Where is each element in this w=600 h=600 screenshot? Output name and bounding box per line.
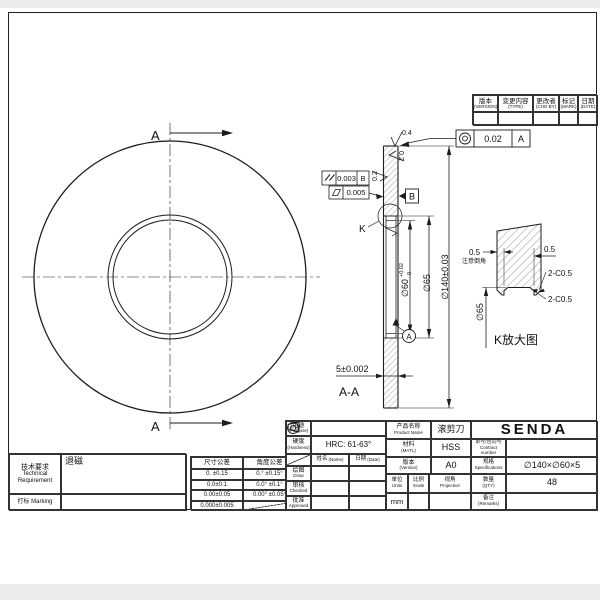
datum-a-letter: A bbox=[406, 333, 412, 342]
datum-b-flag: B bbox=[399, 189, 419, 203]
detail-body bbox=[497, 224, 541, 295]
roughness-left-value: 0.2 bbox=[372, 171, 379, 181]
detail-bore-label: ∅65 bbox=[475, 303, 485, 321]
checked-name-cell bbox=[311, 481, 349, 496]
front-view: A A bbox=[22, 123, 320, 434]
title-block-right: 产品名称 Product Name 滚剪刀 SENDA 材料 (MATL) HS… bbox=[386, 421, 598, 509]
company-name: SENDA bbox=[471, 421, 598, 439]
draw-label: 绘图 Draw bbox=[286, 466, 311, 481]
roughness-bore-icon bbox=[386, 228, 397, 236]
detail-k-letter: K bbox=[359, 224, 366, 235]
title-block-left: 用途 (Purpose) 硬度 (Hardness) HRC: 61-63° 姓… bbox=[286, 421, 386, 509]
material-label: 材料 (MATL) bbox=[386, 439, 431, 457]
revision-cell-empty bbox=[473, 112, 498, 126]
concentricity-value: 0.02 bbox=[484, 134, 502, 144]
dim-bore: ∅60 +0.02 0 bbox=[397, 221, 415, 334]
spec-value: ∅140×∅60×5 bbox=[506, 457, 598, 474]
tech-requirement-label: 技术要求 Technical Requirement bbox=[9, 454, 61, 494]
approved-label: 批准 Approved bbox=[286, 496, 311, 511]
bore-tol-upper: +0.02 bbox=[399, 263, 405, 277]
scale-value bbox=[408, 493, 429, 512]
hardness-label: 硬度 (Hardness) bbox=[286, 436, 311, 454]
detail-chamfer-1-label: 2-C0.5 bbox=[548, 269, 573, 278]
tolerance-cell: 0.00±0.05 bbox=[191, 490, 243, 501]
tolerance-cell: 0. ±0.15 bbox=[191, 469, 243, 480]
section-arrow-icon bbox=[222, 420, 233, 427]
projection-label: 视角 Projection bbox=[429, 474, 471, 493]
purpose-value bbox=[311, 421, 386, 436]
revision-header-mark: 标记 (MARK) bbox=[559, 95, 578, 112]
title-block: 用途 (Purpose) 硬度 (Hardness) HRC: 61-63° 姓… bbox=[285, 420, 597, 510]
qty-label: 数量 (QTY) bbox=[471, 474, 506, 493]
roughness-right-value: 0.2 bbox=[397, 151, 404, 161]
contract-value bbox=[506, 439, 598, 457]
projection-symbol-cell bbox=[429, 493, 471, 512]
datum-b-letter: B bbox=[409, 192, 415, 202]
section-arrow-icon bbox=[222, 130, 233, 137]
revision-table: 版本 (VERSION) 变更内容 (TYPE) 更改者 (CHG BY) 标记… bbox=[472, 94, 597, 125]
revision-header-chgby: 更改者 (CHG BY) bbox=[533, 95, 559, 112]
draw-name-cell bbox=[311, 466, 349, 481]
detail-dim-right-value: 0.5 bbox=[544, 245, 556, 254]
product-name-value: 滚剪刀 bbox=[431, 421, 471, 439]
revision-cell-empty bbox=[578, 112, 598, 126]
remarks-label: 备注 (Remarks) bbox=[471, 493, 506, 512]
approved-date-cell bbox=[349, 496, 386, 511]
name-header: 姓名 (Name) bbox=[311, 454, 349, 466]
units-label: 单位 Units bbox=[386, 474, 408, 493]
drawing-sheet: { "drawing": { "section_label": "A", "se… bbox=[0, 0, 600, 600]
gdt-parallelism-frame: 0.003 B bbox=[322, 171, 369, 185]
revision-header-version: 版本 (VERSION) bbox=[473, 95, 498, 112]
revision-cell-empty bbox=[559, 112, 578, 126]
section-letter-top: A bbox=[151, 128, 160, 143]
detail-note: 注意倒角 bbox=[462, 257, 486, 265]
draw-date-cell bbox=[349, 466, 386, 481]
section-letter-bottom: A bbox=[151, 419, 160, 434]
version-value: A0 bbox=[431, 457, 471, 474]
detail-dim-left-value: 0.5 bbox=[469, 248, 481, 257]
dim-thickness: 5±0.002 bbox=[336, 364, 413, 378]
detail-view: 0.5 0.5 2-C0.5 2-C0.5 ∅65 注意倒角 K放大图 bbox=[462, 224, 573, 348]
date-header: 日期 (Date) bbox=[349, 454, 386, 466]
approved-name-cell bbox=[311, 496, 349, 511]
checked-date-cell bbox=[349, 481, 386, 496]
marking-label: 打标 Marking bbox=[9, 494, 61, 511]
detail-chamfer-1: 2-C0.5 bbox=[538, 269, 573, 293]
bore-label: ∅60 bbox=[400, 279, 410, 297]
roughness-top-value: 0.4 bbox=[402, 130, 412, 137]
section-cut-top bbox=[170, 130, 233, 137]
revision-header-date: 日期 (DATE) bbox=[578, 95, 598, 112]
concentricity-datum: A bbox=[518, 134, 524, 144]
tech-requirement-table: 技术要求 Technical Requirement 退磁 打标 Marking bbox=[8, 453, 186, 510]
parallelism-datum: B bbox=[360, 174, 365, 183]
bore-tol-lower: 0 bbox=[407, 272, 413, 275]
material-value: HSS bbox=[431, 439, 471, 457]
flatness-value: 0.005 bbox=[347, 188, 366, 197]
parallelism-value: 0.003 bbox=[337, 174, 356, 183]
outer-diameter-label: ∅140±0.03 bbox=[440, 254, 450, 299]
section-hatch-bottom bbox=[384, 338, 399, 408]
contract-label: 单号/合同号 Contract number bbox=[471, 439, 506, 457]
thickness-label: 5±0.002 bbox=[336, 364, 368, 374]
spec-label: 规格 Specifications bbox=[471, 457, 506, 474]
tolerance-cell: 0.000±0.005 bbox=[191, 501, 243, 512]
tolerance-header-size: 尺寸公差 bbox=[191, 457, 243, 469]
marking-value bbox=[61, 494, 187, 511]
remarks-value bbox=[506, 493, 598, 512]
revision-header-type: 变更内容 (TYPE) bbox=[498, 95, 533, 112]
section-title: A-A bbox=[339, 385, 359, 399]
signature-corner-cell bbox=[286, 454, 311, 466]
section-cut-bottom bbox=[170, 420, 233, 427]
revision-cell-empty bbox=[498, 112, 533, 126]
revision-cell-empty bbox=[533, 112, 559, 126]
units-value: mm bbox=[386, 493, 408, 512]
qty-value: 48 bbox=[506, 474, 598, 493]
scale-label: 比例 Scale bbox=[408, 474, 429, 493]
gdt-concentricity-frame: 0.02 A bbox=[400, 130, 530, 147]
gdt-flatness-frame: 0.005 bbox=[329, 186, 383, 199]
tolerance-table: 尺寸公差 角度公差 0. ±0.15 0.° ±0.15° 0.0±0.1 0.… bbox=[190, 456, 295, 510]
product-name-label: 产品名称 Product Name bbox=[386, 421, 431, 439]
checked-label: 审核 Checked bbox=[286, 481, 311, 496]
detail-chamfer-2-label: 2-C0.5 bbox=[548, 295, 573, 304]
counterbore-label: ∅65 bbox=[422, 274, 432, 292]
tech-requirement-value: 退磁 bbox=[61, 454, 187, 494]
tolerance-cell: 0.0±0.1 bbox=[191, 480, 243, 491]
detail-title: K放大图 bbox=[494, 332, 538, 347]
hardness-value: HRC: 61-63° bbox=[311, 436, 386, 454]
version-label: 版本 (Version) bbox=[386, 457, 431, 474]
